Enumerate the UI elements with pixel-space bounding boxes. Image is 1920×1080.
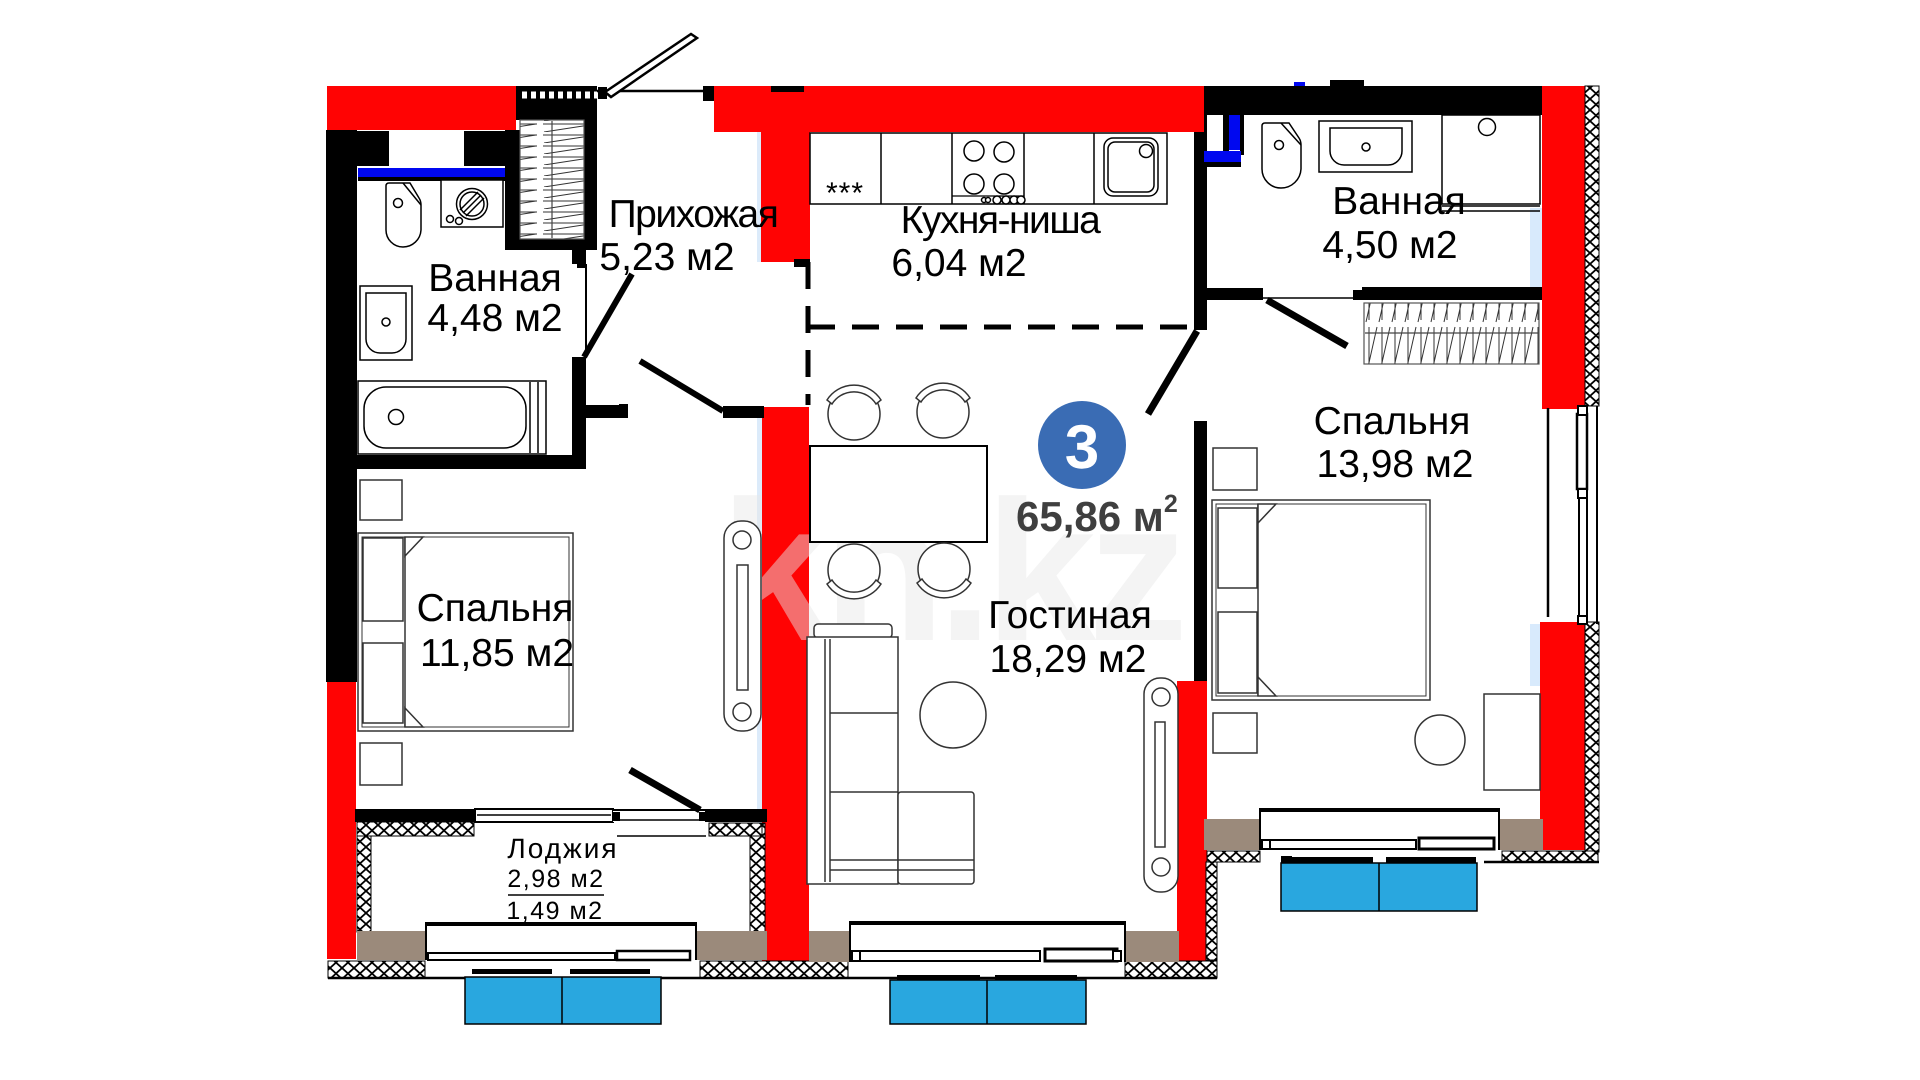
svg-text:Спальня: Спальня — [417, 587, 574, 630]
svg-text:18,29 м2: 18,29 м2 — [990, 638, 1147, 681]
svg-text:Кухня-ниша: Кухня-ниша — [901, 199, 1101, 242]
svg-text:6,04 м2: 6,04 м2 — [891, 242, 1026, 285]
svg-text:***: *** — [826, 177, 864, 210]
svg-text:4,48 м2: 4,48 м2 — [427, 297, 562, 340]
svg-text:4,50 м2: 4,50 м2 — [1322, 224, 1457, 267]
svg-text:Ванная: Ванная — [428, 257, 562, 300]
svg-text:11,85 м2: 11,85 м2 — [420, 632, 574, 675]
svg-text:5,23 м2: 5,23 м2 — [599, 236, 734, 279]
svg-text:Лоджия: Лоджия — [507, 833, 618, 864]
svg-text:65,86 м2: 65,86 м2 — [1016, 490, 1178, 540]
svg-text:3: 3 — [1065, 413, 1099, 482]
svg-text:Ванная: Ванная — [1332, 180, 1466, 223]
svg-text:Прихожая: Прихожая — [609, 193, 778, 236]
svg-text:1,49 м2: 1,49 м2 — [506, 897, 603, 925]
svg-text:Гостиная: Гостиная — [988, 594, 1152, 637]
svg-text:2,98 м2: 2,98 м2 — [507, 865, 604, 893]
svg-text:13,98 м2: 13,98 м2 — [1317, 443, 1474, 486]
svg-text:Спальня: Спальня — [1314, 400, 1471, 443]
